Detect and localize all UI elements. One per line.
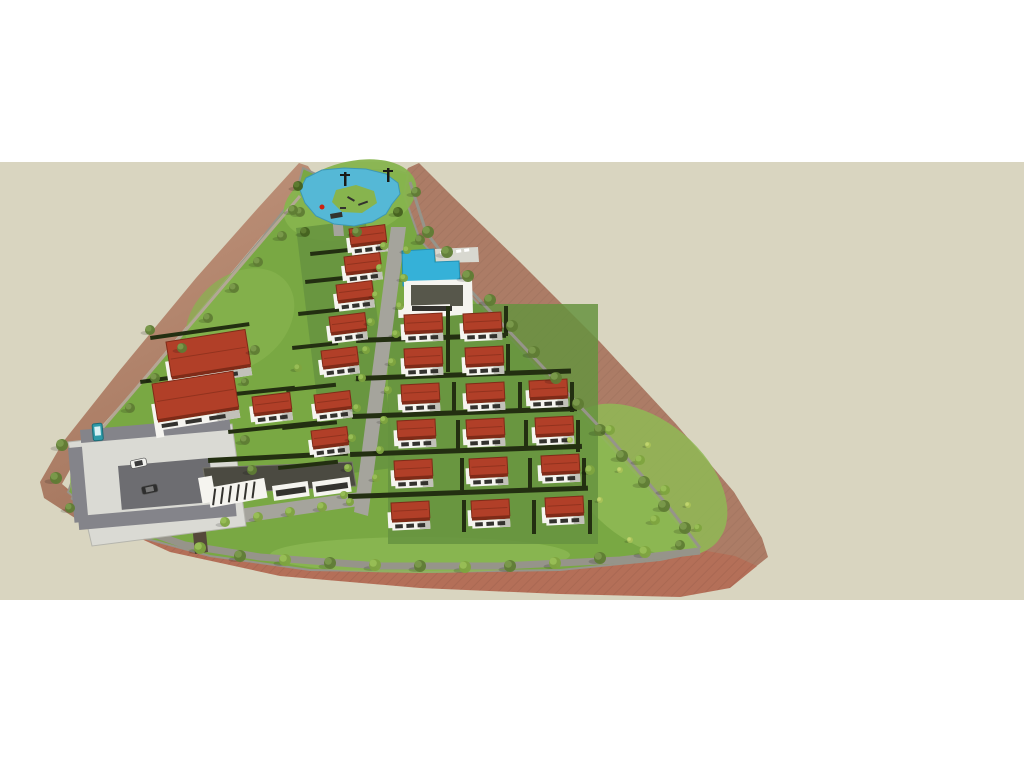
tree-canopy-highlight <box>353 228 359 234</box>
tree-canopy-highlight <box>57 440 64 447</box>
tree-canopy-highlight <box>380 416 385 421</box>
villa <box>317 347 360 379</box>
villa-window <box>549 519 557 523</box>
tree-canopy-highlight <box>606 426 612 432</box>
tree-canopy-highlight <box>294 364 299 369</box>
hedge <box>518 382 522 412</box>
villa-window <box>417 523 425 527</box>
post-crossbar <box>340 174 350 176</box>
tree-canopy-highlight <box>340 491 345 496</box>
villa <box>393 419 436 449</box>
villa-window <box>491 368 499 372</box>
villa-window <box>395 524 403 528</box>
villa-window <box>480 369 488 373</box>
tree-canopy-highlight <box>636 456 642 462</box>
tree-canopy-highlight <box>221 518 227 524</box>
tree-canopy-highlight <box>505 561 512 568</box>
tree-canopy-highlight <box>384 386 389 391</box>
tree-canopy-highlight <box>403 246 408 251</box>
tree-canopy-highlight <box>661 486 667 492</box>
villa-window <box>556 477 564 481</box>
villa <box>467 499 510 529</box>
tree-canopy-highlight <box>346 498 351 503</box>
villa-window <box>550 439 558 443</box>
tree-canopy-highlight <box>388 358 393 363</box>
tree-canopy-highlight <box>394 208 400 214</box>
post-crossbar <box>383 170 393 172</box>
villa-window <box>467 335 475 339</box>
tree-canopy-highlight <box>286 508 292 514</box>
tree-canopy-highlight <box>254 258 260 264</box>
tree-canopy-highlight <box>195 543 202 550</box>
villa-window <box>405 406 413 410</box>
villa <box>325 313 368 345</box>
villa <box>345 225 388 257</box>
villa <box>459 312 502 342</box>
tree-canopy-highlight <box>370 560 377 567</box>
villa-window <box>560 519 568 523</box>
tree-canopy-highlight <box>595 425 602 432</box>
tree-canopy-highlight <box>241 436 247 442</box>
villa-window <box>409 482 417 486</box>
villa-window <box>408 336 416 340</box>
villa-window <box>423 441 431 445</box>
villa <box>461 346 504 376</box>
tree-canopy-highlight <box>507 321 514 328</box>
villa <box>307 427 350 459</box>
tree-canopy-highlight <box>617 467 621 471</box>
tree-canopy-highlight <box>550 558 557 565</box>
hedge <box>588 500 592 534</box>
villa-window <box>420 481 428 485</box>
tree-canopy-highlight <box>376 446 381 451</box>
tree-canopy-highlight <box>353 404 358 409</box>
tree-canopy-highlight <box>597 497 601 501</box>
villa-window <box>470 441 478 445</box>
villa-window <box>470 405 478 409</box>
tree-canopy-highlight <box>442 247 449 254</box>
tree-canopy-highlight <box>178 344 184 350</box>
villa-window <box>419 370 427 374</box>
villa-window <box>567 476 575 480</box>
tree-canopy-highlight <box>463 271 470 278</box>
villa-window <box>486 522 494 526</box>
villa <box>541 496 584 526</box>
tree-canopy-highlight <box>676 541 682 547</box>
hedge <box>532 500 536 534</box>
villa-window <box>533 402 541 406</box>
villa-window <box>478 335 486 339</box>
tree-canopy-highlight <box>396 302 401 307</box>
villa <box>397 383 440 413</box>
villa <box>462 418 505 448</box>
villa-window <box>481 441 489 445</box>
tree-canopy-highlight <box>367 318 372 323</box>
villa <box>332 281 375 313</box>
villa <box>400 313 443 343</box>
villa-window <box>473 480 481 484</box>
tree-canopy-highlight <box>412 188 418 194</box>
villa-window <box>430 335 438 339</box>
villa <box>465 457 508 487</box>
tree-canopy-highlight <box>66 504 72 510</box>
tree-canopy-highlight <box>423 227 430 234</box>
tree-canopy-highlight <box>248 466 254 472</box>
tree-canopy-highlight <box>294 182 300 188</box>
villa-window <box>492 440 500 444</box>
hedge <box>576 420 580 452</box>
tree-canopy-highlight <box>289 206 295 212</box>
tree-canopy-highlight <box>639 477 646 484</box>
masterplan-aerial-view <box>0 0 1024 768</box>
villa-window <box>408 370 416 374</box>
tree-canopy-highlight <box>325 558 332 565</box>
villa-window <box>571 518 579 522</box>
villa <box>525 379 568 409</box>
villa-window <box>539 439 547 443</box>
tree-canopy-highlight <box>251 346 257 352</box>
tree-canopy-highlight <box>235 551 242 558</box>
tree-canopy-highlight <box>348 434 353 439</box>
tree-canopy-highlight <box>301 228 307 234</box>
tree-canopy-highlight <box>651 516 657 522</box>
tree-canopy-highlight <box>241 378 246 383</box>
tree-canopy-highlight <box>586 466 592 472</box>
tree-canopy-highlight <box>380 242 385 247</box>
tree-canopy-highlight <box>126 404 132 410</box>
hedge <box>460 458 464 490</box>
tree-canopy-highlight <box>595 553 602 560</box>
villa-window <box>545 477 553 481</box>
site-plan-render <box>0 0 1024 768</box>
tree-canopy-highlight <box>551 373 558 380</box>
villa <box>310 391 353 423</box>
tree-canopy-highlight <box>204 314 210 320</box>
villa-window <box>484 480 492 484</box>
villa-window <box>416 406 424 410</box>
hedge <box>506 344 510 374</box>
tree-canopy-highlight <box>392 330 397 335</box>
tree-canopy-highlight <box>254 513 260 519</box>
villa-window <box>427 405 435 409</box>
tree-canopy-highlight <box>415 561 422 568</box>
tree-canopy-highlight <box>318 503 324 509</box>
tree-canopy-highlight <box>362 346 367 351</box>
villa-window <box>481 405 489 409</box>
tree-canopy-highlight <box>280 555 287 562</box>
villa-window <box>497 521 505 525</box>
tree-canopy-highlight <box>151 374 157 380</box>
tree-canopy-highlight <box>372 474 377 479</box>
bus-roof <box>94 426 101 435</box>
bus <box>92 423 103 441</box>
tree-canopy-highlight <box>659 501 666 508</box>
tree-canopy-highlight <box>627 537 631 541</box>
villa-window <box>475 522 483 526</box>
villa-window <box>469 369 477 373</box>
clubhouse-roof <box>411 285 463 306</box>
hedge <box>452 382 456 412</box>
villa-window <box>489 334 497 338</box>
hedge <box>462 500 466 532</box>
tree-canopy-highlight <box>358 374 363 379</box>
hedge <box>528 458 532 490</box>
hedge <box>456 420 460 450</box>
villa <box>387 501 430 531</box>
hedge <box>446 306 450 372</box>
playground-equipment <box>340 207 346 209</box>
villa-window <box>555 401 563 405</box>
tree-canopy-highlight <box>645 442 649 446</box>
tree-canopy-highlight <box>694 524 699 529</box>
hedge <box>524 420 528 450</box>
tree-canopy-highlight <box>146 326 152 332</box>
tree-canopy-highlight <box>400 274 405 279</box>
tree-canopy-highlight <box>230 284 236 290</box>
tree-canopy-highlight <box>640 547 647 554</box>
villa-window <box>544 402 552 406</box>
villa <box>390 459 433 489</box>
villa <box>400 347 443 377</box>
tree-canopy-highlight <box>617 451 624 458</box>
tree-canopy-highlight <box>278 232 284 238</box>
villa-window <box>495 479 503 483</box>
tree-canopy-highlight <box>485 295 492 302</box>
villa-window <box>492 404 500 408</box>
tree-canopy-highlight <box>376 264 381 269</box>
tree-canopy-highlight <box>51 473 58 480</box>
villa-window <box>406 524 414 528</box>
tree-canopy-highlight <box>529 347 536 354</box>
tree-canopy-highlight <box>372 291 377 296</box>
tree-canopy-highlight <box>567 437 571 441</box>
villa-window <box>430 369 438 373</box>
villa-window <box>398 482 406 486</box>
tree-canopy-highlight <box>344 464 349 469</box>
tree-canopy-highlight <box>680 523 687 530</box>
tree-canopy-highlight <box>416 236 422 242</box>
play-item-red <box>320 205 325 210</box>
villa-window <box>412 442 420 446</box>
villa-window <box>419 336 427 340</box>
tree-canopy-highlight <box>460 562 467 569</box>
villa <box>248 392 293 425</box>
tree-canopy-highlight <box>573 399 580 406</box>
villa-window <box>401 442 409 446</box>
villa <box>537 454 580 484</box>
tree-canopy-highlight <box>685 502 689 506</box>
villa <box>462 382 505 412</box>
